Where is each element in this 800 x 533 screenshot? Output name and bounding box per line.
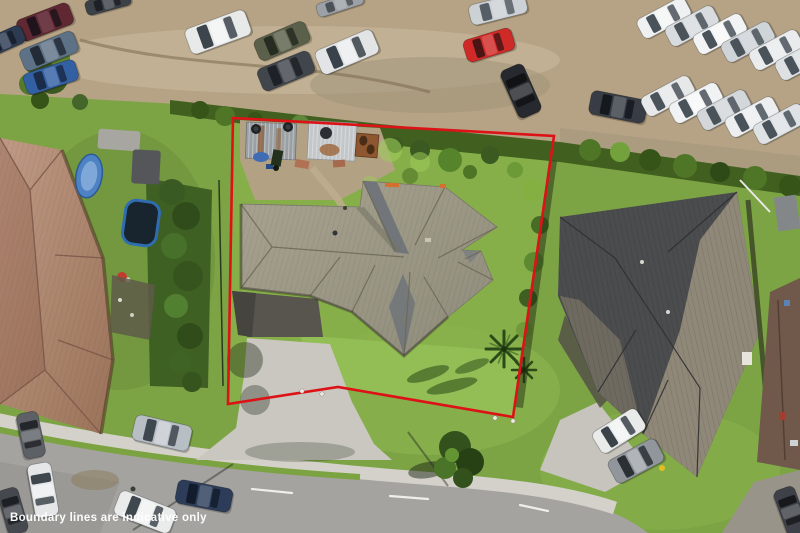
wheel-on-shed — [320, 127, 332, 139]
yellow-marker — [659, 465, 665, 471]
rusty-box — [355, 133, 379, 158]
driveway-shadow — [227, 342, 263, 378]
skylight — [425, 238, 431, 242]
red-item — [779, 412, 785, 420]
blue-item — [784, 300, 790, 306]
roof-vent — [343, 206, 347, 210]
aerial-photo-stage: Boundary lines are indicative only — [0, 0, 800, 533]
boundary-peg-marker — [493, 416, 497, 420]
boundary-peg-marker — [320, 392, 324, 396]
apron-shadow — [245, 442, 355, 462]
trampoline — [121, 199, 161, 247]
verge-dirt-patch — [71, 470, 119, 490]
boundary-disclaimer-text: Boundary lines are indicative only — [10, 512, 207, 524]
roof-vent — [333, 231, 338, 236]
orange-roof-patch — [385, 183, 399, 187]
boundary-peg-marker — [511, 419, 515, 423]
blue-tarp-junk — [253, 152, 269, 162]
aerial-photograph: Boundary lines are indicative only — [0, 0, 800, 533]
backyard-patio — [110, 275, 155, 340]
bricks — [333, 159, 346, 167]
orange-roof-dot — [440, 184, 446, 188]
white-storage-box — [742, 352, 752, 365]
trailer — [97, 129, 140, 152]
shed-right — [307, 121, 357, 161]
street-pole — [131, 487, 136, 492]
boundary-peg-marker — [300, 389, 304, 393]
dark-vehicle-trailer — [131, 149, 161, 184]
white-item — [790, 440, 798, 446]
roof-vent — [640, 260, 644, 264]
roof-vent — [666, 310, 670, 314]
